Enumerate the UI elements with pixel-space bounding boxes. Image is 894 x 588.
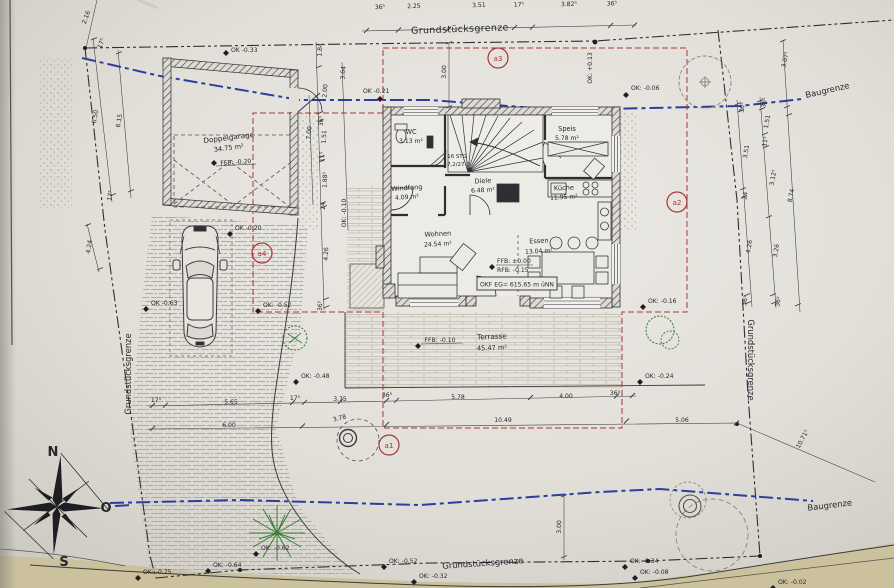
gravel-strip-left xyxy=(40,58,72,208)
room-essen-area: 13.04 m² xyxy=(525,247,554,255)
room-wc-area: 3.13 m² xyxy=(399,138,423,145)
stairs-note-1: 16 STG xyxy=(447,154,466,160)
room-essen-name: Essen xyxy=(529,237,549,246)
ok-terrace-left: OK: -0.48 xyxy=(301,373,330,380)
ok-garage-top: OK -0.33 xyxy=(231,47,258,54)
dim: 3.51 xyxy=(472,2,486,9)
entry-steps xyxy=(350,264,384,308)
room-speis-name: Speis xyxy=(558,125,576,133)
dim: 17⁵ xyxy=(290,395,301,402)
dim: 36⁵ xyxy=(317,300,324,311)
ok-street-right2: OK: -0.08 xyxy=(640,569,669,576)
dim: 36⁵ xyxy=(607,0,618,7)
dim: 36⁵ xyxy=(375,4,386,11)
ok-house-top-left: OK -0.21 xyxy=(363,88,390,95)
dim: 1.51 xyxy=(321,130,328,144)
dim: 6.00 xyxy=(222,422,236,429)
room-speis-area: 5.78 m² xyxy=(555,135,579,142)
room-kueche-area: 11.95 m² xyxy=(550,193,579,201)
dim: 17⁵ xyxy=(151,397,162,404)
ok-house-bottom-right: OK: -0.16 xyxy=(648,298,677,305)
marker-a3: a3 xyxy=(494,54,503,63)
ok-drive-right: OK: -0.52 xyxy=(263,302,292,309)
dim: 5.65 xyxy=(224,399,238,406)
room-wohnen-name: Wohnen xyxy=(424,229,451,238)
terrace-area: 45.47 m² xyxy=(477,343,508,352)
dim: 3.64 xyxy=(340,66,348,80)
dim: 10.49 xyxy=(494,417,512,424)
marker-a2: a2 xyxy=(673,198,682,207)
dim: 2.00 xyxy=(322,84,330,98)
ok-terrace-right: OK: -0.24 xyxy=(645,373,674,380)
dim: 3.00 xyxy=(441,65,448,79)
dim: 4.00 xyxy=(559,393,573,400)
terrace-name: Terrasse xyxy=(476,331,508,341)
marker-a4: a4 xyxy=(258,249,267,258)
dim: 17⁵ xyxy=(514,1,525,8)
dim: 36⁵ xyxy=(382,392,393,399)
compass-north-label: N xyxy=(48,445,59,460)
dim: 2.25 xyxy=(407,3,421,10)
room-kueche-name: Küche xyxy=(554,183,574,192)
boundary-label-left: Grundstücksgrenze xyxy=(123,333,133,414)
dim: 5.78 xyxy=(451,394,465,401)
stairs-note-2: 17,2/27 D xyxy=(444,162,471,168)
site-plan-photo: N O S Grundstücksgrenze xyxy=(0,0,894,588)
compass-south-label: S xyxy=(59,555,68,570)
okf-box: OKF EG= 615.65 m üNN xyxy=(480,282,554,289)
room-wohnen-area: 24.54 m² xyxy=(424,240,453,248)
dim: 1.84 xyxy=(317,43,325,57)
room-diele-area: 6.48 m² xyxy=(471,186,496,194)
dim: 3.00 xyxy=(556,520,563,534)
ok-street-mid2: OK: -0.32 xyxy=(419,573,448,580)
ok-street-far-left: OK: -0.75 xyxy=(143,569,172,576)
ok-entry-path: OK: -0.10 xyxy=(341,199,348,228)
gravel-strip-house xyxy=(620,112,636,232)
house-ffb: FFB: ±0.00 xyxy=(497,258,531,265)
dim: 5.06 xyxy=(675,417,689,424)
ok-garage-apron: OK -0.20 xyxy=(235,225,262,232)
ok-boundary-top-right: OK: +0.13 xyxy=(587,52,594,84)
ok-street-mid: OK: -0.52 xyxy=(389,558,418,565)
ok-street-corner: OK: -0.02 xyxy=(778,579,807,586)
dim: 1.88⁵ xyxy=(322,171,330,188)
dim: 4.26 xyxy=(323,247,330,261)
boundary-label-right: Grundstücksgrenze xyxy=(746,319,756,400)
ok-street-left: OK: -0.64 xyxy=(213,562,242,569)
dim: 24 xyxy=(741,191,749,200)
dim: 7.00 xyxy=(306,126,314,140)
terrace-level: FFB: -0.10 xyxy=(425,337,456,344)
dim: 3.82⁵ xyxy=(561,1,578,9)
compass-east-label: O xyxy=(100,501,111,516)
ok-house-top-right: OK: -0.06 xyxy=(631,85,660,92)
marker-a1: a1 xyxy=(385,441,394,450)
site-plan-canvas: N O S Grundstücksgrenze xyxy=(0,0,894,588)
dim: 11⁵ xyxy=(319,151,326,162)
room-diele-name: Diele xyxy=(474,177,491,186)
dim: 36⁵ xyxy=(318,115,325,126)
dim: 36⁵ xyxy=(610,390,621,397)
ok-drive-left: OK -0.63 xyxy=(151,300,178,307)
dim: 24 xyxy=(320,202,327,210)
ok-street-right: OK: -0.34 xyxy=(630,558,659,565)
room-wc-name: WC xyxy=(405,128,417,136)
dim: 3.75 xyxy=(333,396,347,403)
ok-plant-bottom: OK: -0.62 xyxy=(261,545,290,552)
house-rfb: RFB: -0.15 xyxy=(497,267,529,274)
